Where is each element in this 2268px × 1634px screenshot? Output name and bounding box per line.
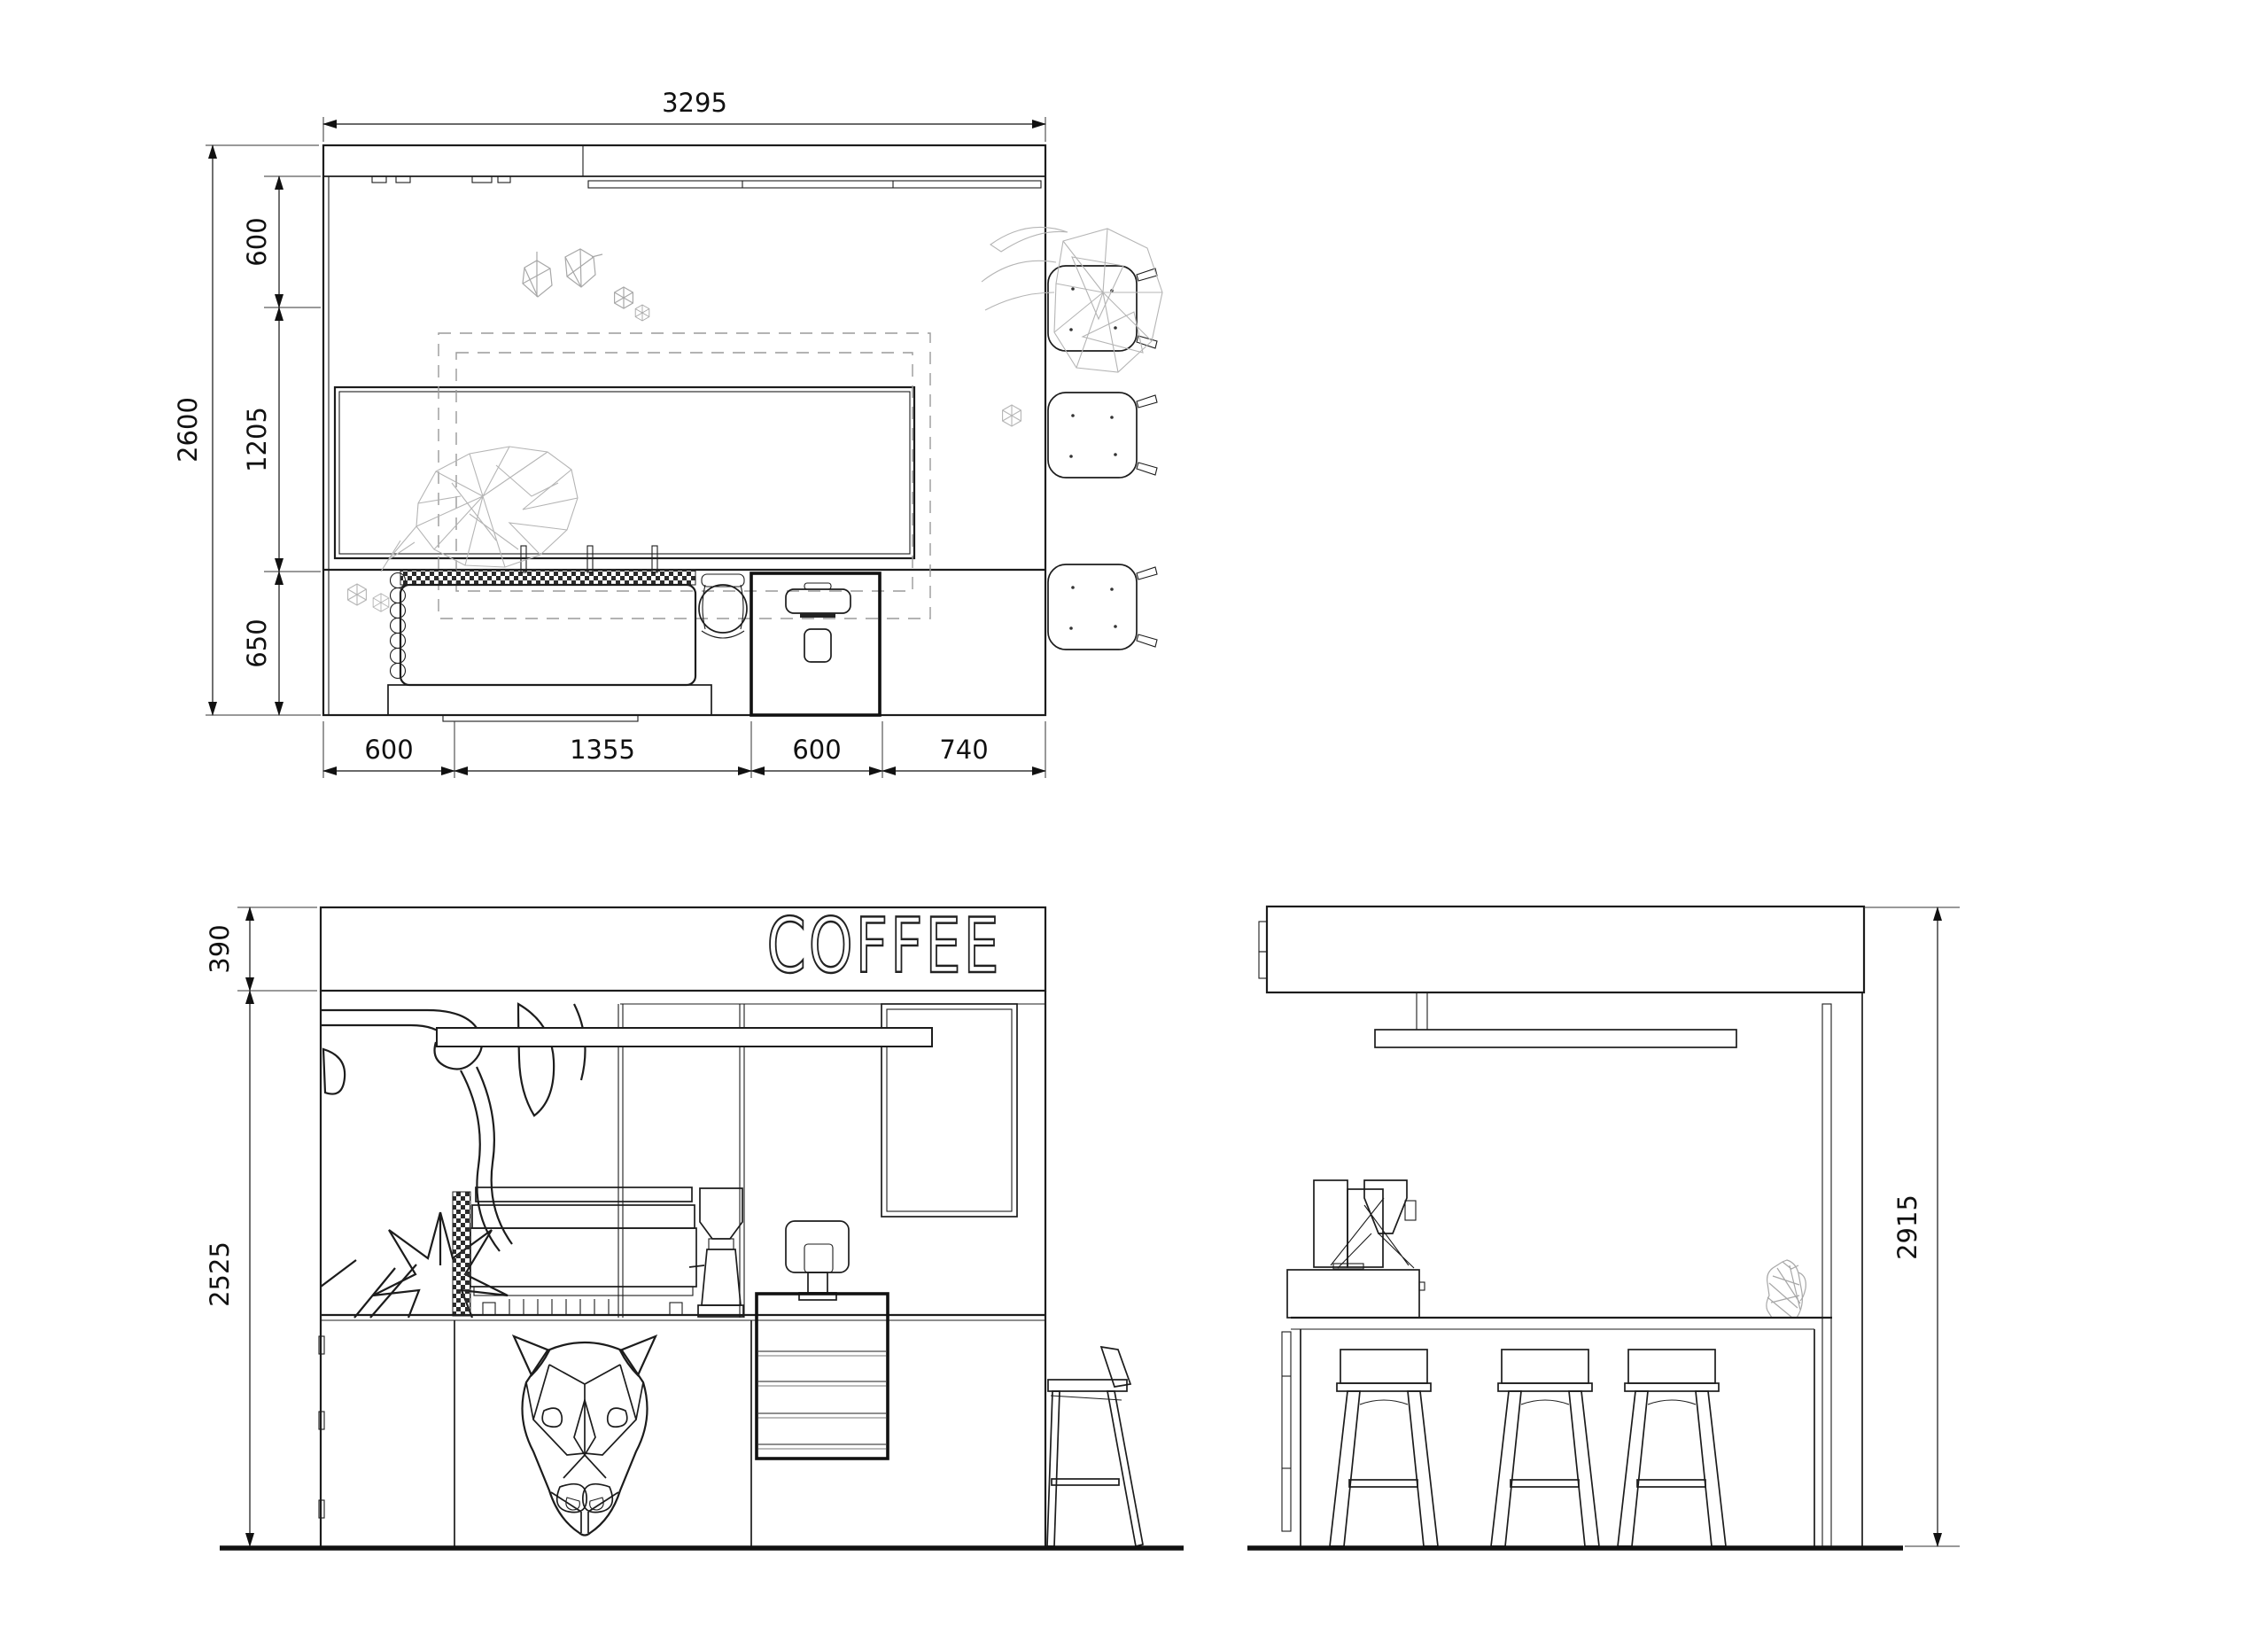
side-dim-total: 2915 — [1864, 907, 1960, 1546]
front-dim-body: 2525 — [205, 991, 250, 1546]
front-shelf-bar — [437, 1028, 932, 1047]
plan-dim-left-segments: 600 1205 650 — [242, 176, 321, 715]
plan-outer-wall — [323, 145, 1045, 715]
dim-label: 600 — [242, 217, 272, 266]
plan-cabinet — [751, 573, 880, 715]
front-espresso-machine — [470, 1187, 696, 1315]
side-hanging-light — [1375, 992, 1736, 1047]
coffee-sign: COFFEE — [767, 902, 1002, 991]
plan-kettle — [699, 574, 747, 638]
side-canopy — [1267, 906, 1864, 992]
front-elevation: COFFEE — [205, 902, 1184, 1548]
front-dim-fascia: 390 — [205, 907, 317, 991]
kiosk-technical-drawing: 3295 2600 600 1205 650 600 1355 600 740 — [0, 0, 2268, 1634]
dim-label: 2915 — [1892, 1194, 1922, 1260]
front-crate-shelf — [757, 1294, 888, 1459]
plan-pendant-lamps — [523, 249, 602, 297]
plan-dim-width: 3295 — [323, 88, 1045, 142]
plan-espresso-machine — [388, 546, 711, 721]
side-elevation: 2915 — [1247, 906, 1960, 1548]
side-vase-wireframe — [1767, 1260, 1806, 1318]
front-pos-register — [786, 1221, 849, 1300]
dim-label: 650 — [242, 619, 272, 667]
dim-label: 2525 — [205, 1241, 235, 1307]
front-cup-dispenser — [453, 1192, 470, 1316]
front-bar-stool — [1047, 1347, 1143, 1546]
plan-chair — [1048, 393, 1157, 478]
plan-chair — [1048, 564, 1157, 650]
dim-label: 1355 — [570, 735, 635, 765]
dim-label: 1205 — [242, 407, 272, 472]
dim-label: 390 — [205, 924, 235, 973]
plan-dim-bottom-segments: 600 1355 600 740 — [323, 721, 1045, 778]
hexagon-decor-icon — [1003, 405, 1021, 426]
front-grinder — [689, 1188, 743, 1317]
dim-label: 2600 — [173, 397, 203, 463]
plan-roof-edge-dashed — [456, 353, 913, 591]
hexagon-decor-icon — [373, 594, 389, 611]
side-back-panel — [1822, 1004, 1831, 1546]
side-machine-riser — [1287, 1270, 1419, 1318]
front-wall-panel-seams — [618, 1004, 744, 1318]
dim-label: 600 — [792, 735, 841, 765]
dim-label: 3295 — [662, 88, 727, 118]
side-stool — [1330, 1350, 1438, 1546]
side-stool — [1618, 1350, 1726, 1546]
hexagon-decor-icon — [615, 287, 633, 308]
dim-label: 740 — [939, 735, 988, 765]
side-stool — [1491, 1350, 1599, 1546]
plan-rhino-wireframe — [381, 447, 578, 572]
plan-chair — [1048, 266, 1157, 351]
plan-view: 3295 2600 600 1205 650 600 1355 600 740 — [173, 88, 1162, 778]
front-rhino-graphic — [514, 1336, 656, 1536]
hexagon-decor-icon — [348, 584, 367, 605]
side-left-panel — [1282, 1332, 1291, 1531]
side-espresso-machine — [1314, 1180, 1416, 1269]
dim-label: 600 — [364, 735, 413, 765]
drawing-canvas: 3295 2600 600 1205 650 600 1355 600 740 — [0, 0, 2268, 1634]
hexagon-decor-icon — [635, 305, 649, 321]
